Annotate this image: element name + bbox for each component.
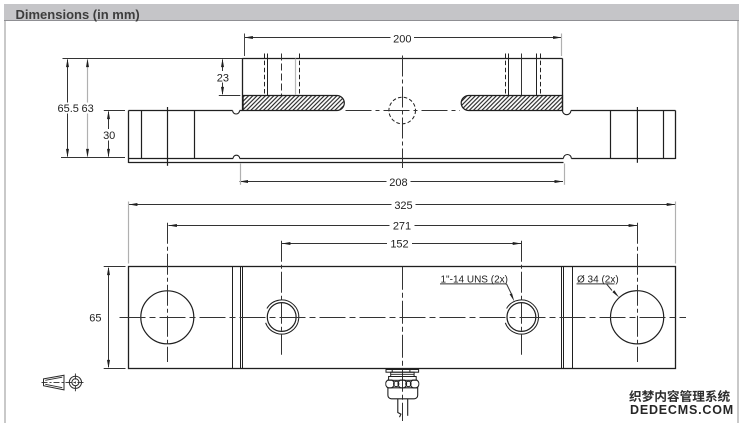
svg-text:65: 65 — [89, 313, 101, 325]
svg-text:271: 271 — [393, 221, 411, 233]
svg-text:23: 23 — [217, 72, 229, 84]
svg-text:325: 325 — [394, 200, 412, 212]
svg-text:65.5: 65.5 — [57, 103, 78, 115]
svg-text:30: 30 — [103, 130, 115, 142]
svg-text:208: 208 — [389, 177, 407, 189]
svg-text:63: 63 — [81, 103, 93, 115]
svg-text:200: 200 — [393, 33, 411, 45]
svg-text:152: 152 — [390, 239, 408, 251]
